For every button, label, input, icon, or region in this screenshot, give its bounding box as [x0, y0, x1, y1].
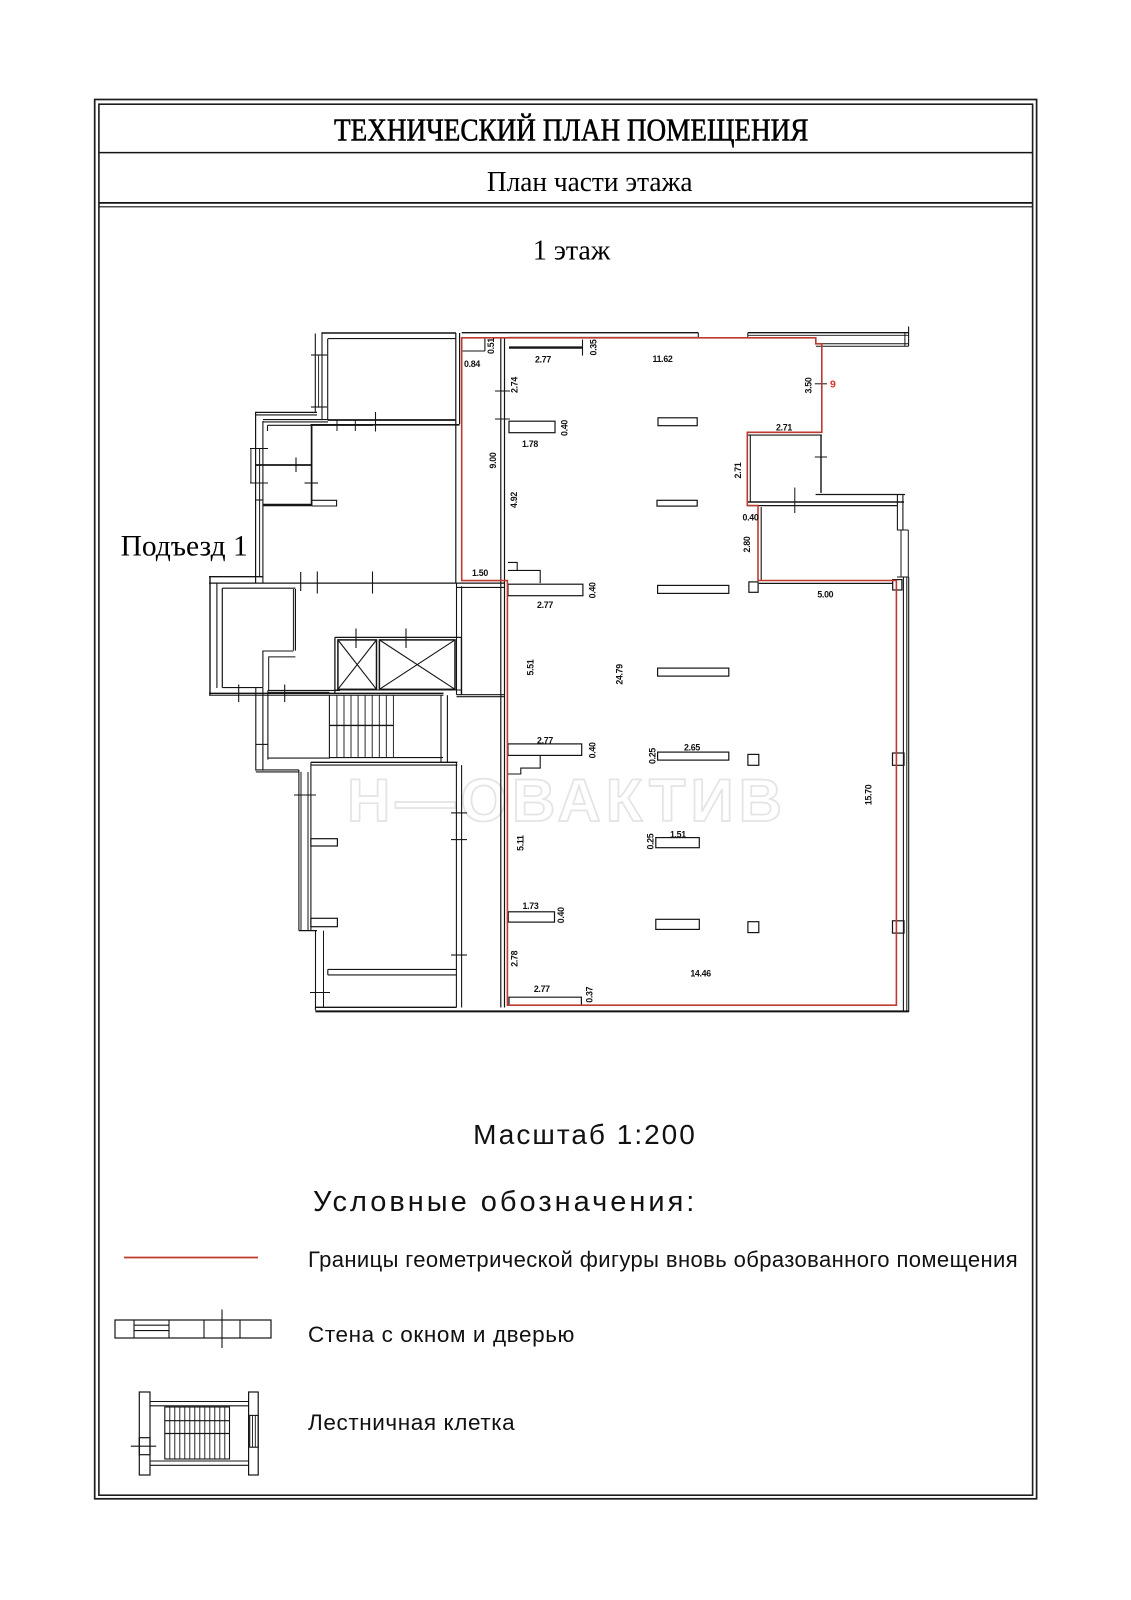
svg-text:1.73: 1.73 — [523, 901, 539, 911]
svg-text:9.00: 9.00 — [488, 452, 498, 468]
svg-text:11.62: 11.62 — [652, 354, 672, 364]
svg-text:5.51: 5.51 — [526, 659, 536, 675]
svg-text:5.11: 5.11 — [516, 835, 526, 851]
svg-text:0.40: 0.40 — [588, 582, 598, 598]
svg-text:0.40: 0.40 — [743, 512, 759, 522]
svg-text:2.77: 2.77 — [534, 984, 550, 994]
svg-text:1.51: 1.51 — [670, 829, 686, 839]
svg-text:2.65: 2.65 — [684, 742, 700, 752]
svg-text:5.00: 5.00 — [817, 590, 833, 600]
svg-text:0.84: 0.84 — [464, 359, 480, 369]
svg-text:0.40: 0.40 — [560, 420, 570, 436]
svg-text:14.46: 14.46 — [690, 969, 711, 979]
svg-text:0.25: 0.25 — [646, 833, 656, 849]
svg-text:1.50: 1.50 — [472, 568, 488, 578]
svg-text:Масштаб 1:200: Масштаб 1:200 — [473, 1119, 697, 1150]
svg-text:Подъезд 1: Подъезд 1 — [121, 530, 248, 562]
svg-text:0.35: 0.35 — [589, 339, 599, 355]
svg-text:2.77: 2.77 — [537, 735, 553, 745]
svg-text:1.78: 1.78 — [522, 439, 538, 449]
svg-text:4.92: 4.92 — [509, 492, 519, 508]
svg-text:ТЕХНИЧЕСКИЙ ПЛАН ПОМЕЩЕНИЯ: ТЕХНИЧЕСКИЙ ПЛАН ПОМЕЩЕНИЯ — [334, 114, 808, 148]
svg-text:3.50: 3.50 — [804, 377, 814, 393]
svg-text:2.71: 2.71 — [776, 423, 792, 433]
svg-text:Границы геометрической фигуры: Границы геометрической фигуры вновь обра… — [308, 1247, 1018, 1272]
svg-text:2.78: 2.78 — [510, 950, 520, 966]
svg-text:0.40: 0.40 — [556, 907, 566, 923]
svg-text:1 этаж: 1 этаж — [533, 236, 611, 267]
svg-text:0.37: 0.37 — [585, 986, 595, 1002]
svg-text:Стена с окном и дверью: Стена с окном и дверью — [308, 1322, 575, 1347]
svg-text:2.71: 2.71 — [733, 462, 743, 478]
svg-text:2.77: 2.77 — [535, 355, 551, 365]
svg-text:2.80: 2.80 — [742, 536, 752, 552]
svg-text:15.70: 15.70 — [864, 784, 874, 805]
svg-text:0.25: 0.25 — [647, 748, 657, 764]
svg-text:9: 9 — [830, 379, 836, 391]
svg-text:24.79: 24.79 — [615, 664, 625, 685]
svg-text:2.74: 2.74 — [510, 377, 520, 393]
svg-text:0.51: 0.51 — [486, 338, 496, 354]
svg-text:2.77: 2.77 — [537, 600, 553, 610]
svg-text:Условные обозначения:: Условные обозначения: — [313, 1186, 697, 1218]
svg-text:0.40: 0.40 — [588, 742, 598, 758]
svg-text:Лестничная клетка: Лестничная клетка — [308, 1410, 515, 1435]
svg-text:Н—ОВАКТИВ: Н—ОВАКТИВ — [347, 767, 787, 834]
svg-text:План части этажа: План части этажа — [487, 166, 693, 198]
